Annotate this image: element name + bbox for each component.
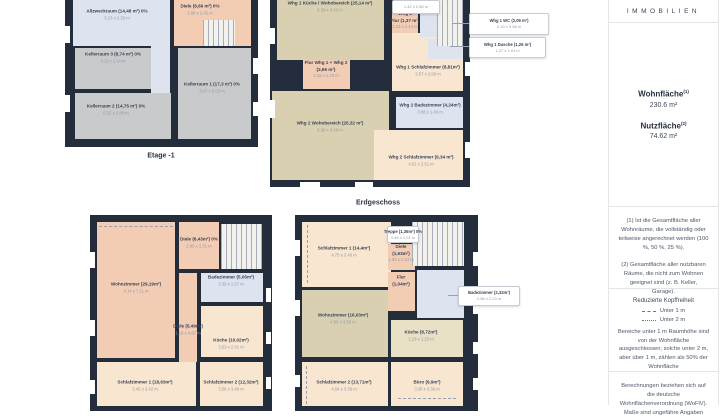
- calculation-note: Berechnungen beziehen sich auf die deuts…: [618, 382, 709, 418]
- legend-under-1m: Unter 1 m: [617, 308, 710, 314]
- callout-leader-line: [452, 23, 469, 24]
- callout-leader-line: [448, 295, 458, 296]
- wohnflaeche-heading: Wohnfläche(1): [638, 89, 689, 99]
- window-gap: [90, 320, 95, 336]
- nutzflaeche-value: 74.62 m²: [650, 133, 678, 140]
- room-whg1-kueche-wohnbereich: [277, 0, 384, 60]
- wohnflaeche-value: 230.6 m²: [650, 102, 678, 109]
- callout: Treppe (1,35m²) 0%1.46 x 1.01 m: [387, 226, 419, 243]
- room-badezimmer-og1: [201, 273, 263, 302]
- dashed-line-icon: [642, 311, 656, 312]
- room-buero: [391, 362, 463, 406]
- window-gap: [295, 240, 300, 256]
- window-gap: [266, 332, 271, 344]
- wohnflaeche-label: Wohnfläche: [638, 90, 683, 99]
- room-flur-whg1-whg2: [303, 60, 350, 89]
- stairs: [221, 224, 262, 269]
- room-badezimmer-og2: [417, 270, 464, 318]
- sidebar-brand-section: IMMOBILIEN: [609, 0, 718, 23]
- room-schlafzimmer-2-og1: [200, 362, 263, 406]
- note-wohnflaeche: (1) Ist die Gesamtfläche aller Wohnräume…: [618, 217, 709, 253]
- room-kellerraum-2: [75, 93, 171, 139]
- window-gap: [65, 95, 70, 112]
- legend-under-2m: Unter 2 m: [617, 317, 710, 323]
- room-diele-549: [179, 273, 197, 362]
- window-gap: [270, 100, 275, 118]
- room-wohnzimmer-og1: [97, 222, 175, 358]
- nutzflaeche-footnote-marker: (2): [681, 121, 687, 126]
- window-gap: [65, 26, 70, 43]
- window-gap: [253, 102, 258, 116]
- window-gap: [355, 182, 373, 187]
- room-flur-og2: [388, 272, 415, 311]
- window-gap: [266, 288, 271, 302]
- window-gap: [465, 142, 470, 158]
- legend-under-1m-label: Unter 1 m: [660, 308, 685, 314]
- room-diele-643: [179, 222, 219, 269]
- floor-label: Etage -1: [147, 153, 174, 160]
- room-whg2-schlafzimmer: [374, 130, 463, 180]
- window-gap: [90, 252, 95, 268]
- room-whg2-wohnbereich: [272, 91, 389, 180]
- window-gap: [295, 375, 300, 387]
- window-gap: [253, 58, 258, 74]
- headroom-title: Reduzierte Kopffreiheit: [617, 298, 710, 304]
- headroom-dash-line: [307, 225, 308, 283]
- window-gap: [295, 300, 300, 316]
- callout: 1.42 x 2.80 m: [392, 0, 440, 14]
- sidebar-headroom-section: Reduzierte Kopffreiheit Unter 1 m Unter …: [609, 289, 718, 372]
- info-sidebar: IMMOBILIEN Wohnfläche(1) 230.6 m² Nutzfl…: [608, 0, 719, 405]
- room-kueche-og2: [391, 320, 463, 357]
- floor-label: Erdgeschoss: [356, 200, 400, 207]
- wohnflaeche-footnote-marker: (1): [683, 89, 689, 94]
- stairs: [203, 20, 235, 46]
- room-schlafzimmer-1-og2: [302, 222, 391, 287]
- room-wohnzimmer-og2: [302, 290, 388, 357]
- sidebar-notes-section: (1) Ist die Gesamtfläche aller Wohnräume…: [609, 207, 718, 289]
- room-schlafzimmer-1-og1: [97, 362, 196, 406]
- dotted-line-icon: [642, 320, 656, 321]
- legend-under-2m-label: Unter 2 m: [660, 317, 685, 323]
- window-gap: [90, 380, 95, 394]
- callout: Whg 1 Dusche (1,26 m²)1.27 x 1.01 m: [469, 37, 546, 58]
- sidebar-footer-section: Berechnungen beziehen sich auf die deuts…: [609, 372, 718, 412]
- brand-logo-text: IMMOBILIEN: [627, 8, 700, 15]
- headroom-dash-line: [306, 366, 307, 404]
- callout: Whg 1 WC (2,09 m²)2.19 x 0.98 m: [469, 13, 549, 35]
- nutzflaeche-label: Nutzfläche: [641, 121, 681, 130]
- callout: Badezimmer (2,32m²)1.58 x 2.23 m: [458, 286, 520, 306]
- callout-leader-line: [450, 46, 469, 47]
- window-gap: [473, 252, 478, 266]
- headroom-note: Bereiche unter 1 m Raumhöhe sind von der…: [617, 328, 710, 371]
- room-kueche-og1: [201, 306, 263, 357]
- nutzflaeche-heading: Nutzfläche(2): [641, 121, 687, 131]
- room-whg2-badezimmer: [396, 97, 463, 128]
- sidebar-area-section: Wohnfläche(1) 230.6 m² Nutzfläche(2) 74.…: [609, 23, 718, 207]
- room-whg1-flur: [392, 13, 418, 33]
- room-kellerraum-1: [178, 48, 251, 139]
- room-diele-og2: [388, 244, 415, 270]
- headroom-dash-line: [398, 398, 456, 399]
- window-gap: [266, 377, 271, 389]
- headroom-dash-line: [99, 226, 173, 227]
- window-gap: [473, 342, 478, 354]
- room-schlafzimmer-2-og2: [302, 362, 388, 406]
- room-kellerraum-3: [75, 48, 151, 89]
- window-gap: [473, 378, 478, 390]
- room-allzweckraum: [73, 0, 170, 46]
- window-gap: [300, 182, 320, 187]
- window-gap: [465, 62, 470, 76]
- window-gap: [270, 28, 275, 44]
